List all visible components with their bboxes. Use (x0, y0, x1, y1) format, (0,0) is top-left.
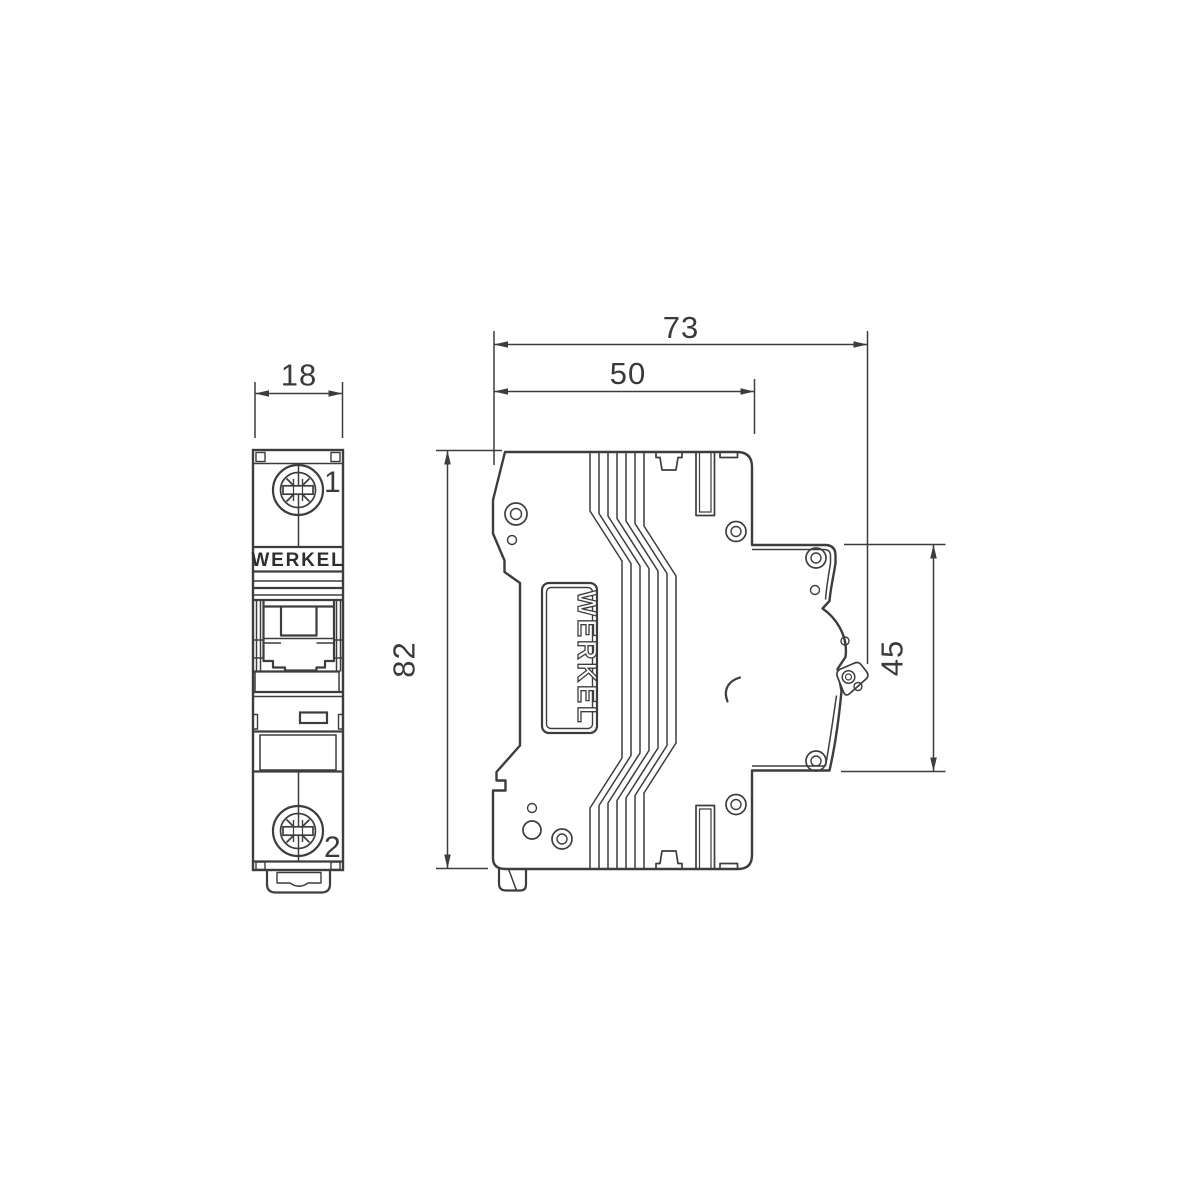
terminal-1-label: 1 (324, 466, 341, 499)
dim-18-label: 18 (281, 358, 317, 393)
terminal-screw-bottom (273, 806, 323, 856)
dim-50-label: 50 (610, 356, 646, 391)
dim-82-label: 82 (387, 641, 422, 677)
front-brand-label: WERKEL (251, 550, 344, 571)
breaker-dimension-drawing: 1 2 WERKEL WERKEL (0, 0, 1200, 1200)
front-view: 1 2 WERKEL (251, 450, 344, 893)
dim-45-label: 45 (875, 640, 910, 676)
dim-73-label: 73 (663, 310, 699, 345)
terminal-screw-top (273, 465, 323, 515)
side-brand-label: WERKEL (572, 591, 602, 726)
terminal-2-label: 2 (324, 831, 341, 864)
technical-drawing-page: 1 2 WERKEL WERKEL (0, 0, 1200, 1200)
